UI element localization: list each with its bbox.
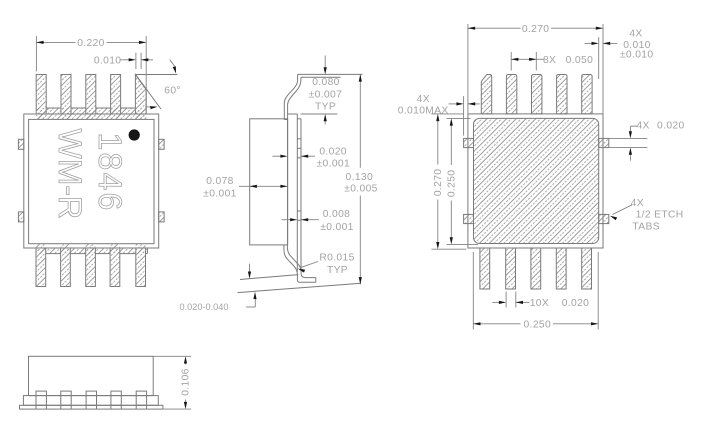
svg-text:4X: 4X xyxy=(629,28,642,39)
svg-text:0.220: 0.220 xyxy=(77,38,105,49)
svg-text:0.250: 0.250 xyxy=(447,170,458,198)
svg-text:0.080: 0.080 xyxy=(312,77,340,88)
svg-text:0.010MAX: 0.010MAX xyxy=(398,106,449,117)
svg-text:4X: 4X xyxy=(631,198,644,209)
svg-text:10X: 10X xyxy=(530,298,549,309)
svg-text:0.008: 0.008 xyxy=(323,209,351,220)
svg-text:R0.015: R0.015 xyxy=(319,253,354,264)
svg-text:±0.001: ±0.001 xyxy=(320,222,354,233)
svg-text:4X: 4X xyxy=(636,121,649,132)
svg-text:±0.010: ±0.010 xyxy=(620,50,654,61)
svg-text:0.106: 0.106 xyxy=(180,368,191,396)
svg-text:8X: 8X xyxy=(543,55,556,66)
svg-text:TYP: TYP xyxy=(315,101,336,112)
svg-text:±0.005: ±0.005 xyxy=(344,184,378,195)
svg-text:0.010: 0.010 xyxy=(94,56,122,67)
svg-text:0.130: 0.130 xyxy=(346,172,374,183)
svg-text:0.250: 0.250 xyxy=(524,320,552,331)
svg-text:0.020: 0.020 xyxy=(562,298,590,309)
svg-text:TABS: TABS xyxy=(632,222,660,233)
svg-text:0.020: 0.020 xyxy=(657,121,685,132)
svg-text:WM-R: WM-R xyxy=(52,128,88,219)
svg-text:0.050: 0.050 xyxy=(566,55,594,66)
svg-text:60°: 60° xyxy=(164,85,181,96)
svg-text:4X: 4X xyxy=(417,94,430,105)
svg-text:±0.001: ±0.001 xyxy=(203,189,237,200)
svg-text:0.270: 0.270 xyxy=(522,24,550,35)
svg-text:±0.001: ±0.001 xyxy=(317,158,351,169)
svg-text:0.270: 0.270 xyxy=(433,169,444,197)
svg-text:0.078: 0.078 xyxy=(206,176,234,187)
svg-text:1846: 1846 xyxy=(92,133,128,213)
svg-text:TYP: TYP xyxy=(327,265,348,276)
svg-text:0.020-0.040: 0.020-0.040 xyxy=(179,302,228,312)
svg-text:±0.007: ±0.007 xyxy=(309,90,343,101)
svg-text:0.020: 0.020 xyxy=(319,146,347,157)
svg-text:1/2 ETCH: 1/2 ETCH xyxy=(636,210,684,221)
